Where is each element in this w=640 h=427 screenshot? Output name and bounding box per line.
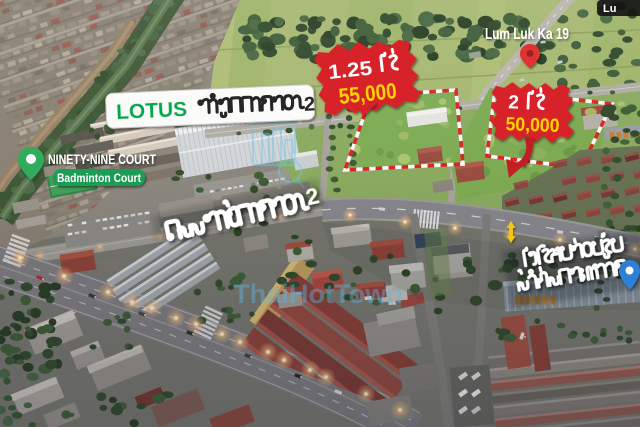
svg-text:LOTUS: LOTUS [116, 98, 188, 124]
svg-text:50,000: 50,000 [505, 114, 560, 137]
svg-text:Lu: Lu [603, 3, 616, 15]
svg-text:NINETY-NINE COURT: NINETY-NINE COURT [48, 152, 157, 167]
svg-text:Lum Luk Ka 19: Lum Luk Ka 19 [485, 26, 569, 43]
svg-text:2: 2 [304, 93, 316, 115]
svg-text:ThaiHotTown: ThaiHotTown [233, 279, 403, 309]
svg-text:2: 2 [508, 92, 519, 113]
svg-text:1.25: 1.25 [327, 57, 373, 83]
svg-text:Badminton Court: Badminton Court [57, 171, 141, 185]
